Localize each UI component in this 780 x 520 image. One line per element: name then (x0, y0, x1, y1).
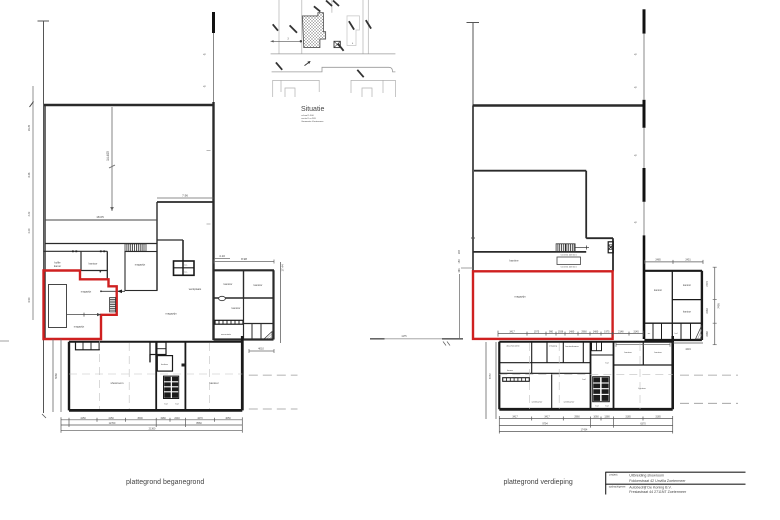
svg-text:hal: hal (606, 406, 609, 408)
svg-text:4150: 4150 (108, 417, 114, 420)
svg-text:3417: 3417 (509, 330, 515, 333)
svg-text:4500: 4500 (137, 417, 143, 420)
svg-text:1980: 1980 (160, 417, 166, 420)
svg-text:kantoor: kantoor (254, 283, 263, 287)
svg-text:magazijn: magazijn (74, 325, 85, 329)
svg-text:omgang: omgang (549, 346, 558, 348)
svg-text:werkplaats: werkplaats (189, 287, 202, 291)
svg-text:kantoor: kantoor (683, 284, 691, 287)
svg-text:3417: 3417 (544, 416, 550, 419)
svg-text:Gemeente Zoetermeer: Gemeente Zoetermeer (301, 120, 323, 123)
svg-text:8560: 8560 (196, 422, 202, 425)
svg-text:8.38: 8.38 (28, 172, 31, 177)
svg-text:3145: 3145 (633, 330, 639, 333)
svg-text:363: 363 (458, 268, 461, 273)
svg-text:6757: 6757 (488, 373, 492, 379)
svg-text:51 03 51 048 51 0: 51 03 51 048 51 0 (561, 267, 578, 269)
svg-text:1975: 1975 (604, 330, 610, 333)
svg-text:kantoor: kantoor (654, 351, 662, 354)
svg-text:magazijn: magazijn (165, 312, 177, 316)
svg-text:3185: 3185 (625, 416, 631, 419)
svg-text:2148: 2148 (618, 330, 624, 333)
svg-text:5060: 5060 (54, 373, 58, 379)
svg-text:project:: project: (610, 473, 619, 477)
svg-text:17434: 17434 (581, 429, 588, 432)
svg-text:plattegrond verdieping: plattegrond verdieping (504, 479, 573, 486)
svg-text:doucheruimte: doucheruimte (506, 345, 520, 348)
svg-text:Situatie: Situatie (301, 106, 324, 113)
svg-text:9794: 9794 (542, 423, 548, 426)
svg-text:kantoor: kantoor (209, 381, 218, 385)
svg-text:2280: 2280 (706, 308, 709, 314)
svg-text:26.78: 26.78 (28, 124, 31, 131)
svg-text:1975: 1975 (534, 330, 540, 333)
svg-text:kantoor: kantoor (654, 289, 662, 292)
svg-text:4050: 4050 (225, 417, 231, 420)
svg-text:1175: 1175 (401, 335, 407, 338)
svg-text:hal: hal (606, 363, 609, 365)
svg-text:3417: 3417 (512, 416, 518, 419)
svg-text:21360: 21360 (149, 428, 156, 431)
svg-text:kantoor: kantoor (624, 351, 632, 354)
svg-text:2960: 2960 (581, 330, 587, 333)
svg-text:51 03 51 048 51 0: 51 03 51 048 51 0 (561, 255, 578, 257)
svg-text:1060: 1060 (593, 416, 599, 419)
svg-text:showroom: showroom (111, 381, 125, 385)
svg-text:990: 990 (549, 330, 554, 333)
svg-text:wasruimte: wasruimte (221, 333, 232, 336)
svg-text:plattegrond beganegrond: plattegrond beganegrond (126, 479, 204, 486)
svg-text:w.c.: w.c. (184, 265, 188, 267)
svg-text:17.44: 17.44 (281, 264, 285, 271)
svg-text:Autobedrijf De Koning B.V.: Autobedrijf De Koning B.V. (629, 485, 671, 489)
svg-text:2960: 2960 (574, 416, 580, 419)
svg-text:6370: 6370 (640, 423, 646, 426)
svg-text:kamer: kamer (54, 264, 61, 268)
svg-text:hal: hal (583, 379, 586, 381)
svg-text:hal: hal (176, 404, 179, 406)
svg-text:hal: hal (165, 404, 168, 406)
svg-text:hal: hal (596, 406, 599, 408)
svg-text:wc: wc (648, 333, 650, 335)
svg-text:sectie F nr.263: sectie F nr.263 (301, 117, 316, 120)
svg-text:Uitbreiding showroom: Uitbreiding showroom (629, 474, 664, 478)
svg-text:7.96: 7.96 (182, 194, 188, 198)
svg-text:4010: 4010 (258, 347, 264, 351)
svg-text:1480: 1480 (593, 330, 599, 333)
svg-text:1480: 1480 (569, 330, 575, 333)
svg-text:2451: 2451 (685, 259, 691, 262)
svg-text:opdrachtgever:: opdrachtgever: (609, 484, 627, 488)
svg-text:kantoor: kantoor (232, 306, 241, 310)
svg-text:Fokkerstraat 42 Unvilla Zoete: Fokkerstraat 42 Unvilla Zoetermeer (629, 479, 686, 483)
svg-text:18.05: 18.05 (96, 215, 104, 219)
svg-text:kantoorkamer: kantoorkamer (565, 345, 579, 348)
svg-text:4.42: 4.42 (28, 211, 31, 216)
svg-text:1936: 1936 (558, 330, 564, 333)
svg-text:kantoor: kantoor (89, 262, 98, 266)
svg-text:w.c.: w.c. (184, 272, 188, 274)
svg-text:4150: 4150 (80, 417, 86, 420)
svg-text:magazijn: magazijn (514, 295, 526, 299)
svg-text:7495: 7495 (718, 303, 721, 309)
svg-text:werkkamer: werkkamer (564, 401, 575, 404)
svg-text:2089: 2089 (706, 331, 709, 337)
svg-text:kamer: kamer (507, 369, 513, 372)
svg-text:2.20: 2.20 (28, 228, 31, 233)
svg-text:2770: 2770 (706, 281, 709, 287)
svg-text:kantoor: kantoor (683, 311, 691, 314)
svg-text:2240: 2240 (174, 417, 180, 420)
svg-text:14.405: 14.405 (106, 151, 110, 161)
svg-text:keuken: keuken (161, 364, 169, 366)
svg-text:werkkamer: werkkamer (532, 401, 543, 404)
svg-text:kantine: kantine (509, 259, 518, 263)
svg-text:schaal 1:500: schaal 1:500 (301, 115, 314, 117)
svg-text:6.90: 6.90 (28, 297, 31, 302)
svg-text:4.10: 4.10 (219, 254, 225, 258)
svg-text:3185: 3185 (655, 416, 661, 419)
svg-text:8.98: 8.98 (241, 257, 247, 261)
svg-text:magazijn: magazijn (81, 290, 92, 294)
svg-text:kantoor: kantoor (224, 282, 233, 286)
svg-text:kantoor: kantoor (638, 387, 646, 390)
svg-text:287: 287 (458, 249, 461, 254)
svg-text:12700: 12700 (109, 422, 116, 425)
svg-text:Fresiastraat 44 2711NT Zoeter: Fresiastraat 44 2711NT Zoetermeer (629, 490, 687, 494)
svg-text:4419: 4419 (685, 348, 691, 351)
svg-text:4270: 4270 (197, 417, 203, 420)
svg-text:magazijn: magazijn (135, 263, 146, 267)
svg-text:2485: 2485 (655, 259, 661, 262)
svg-text:1380: 1380 (604, 416, 610, 419)
svg-text:150: 150 (458, 259, 461, 264)
